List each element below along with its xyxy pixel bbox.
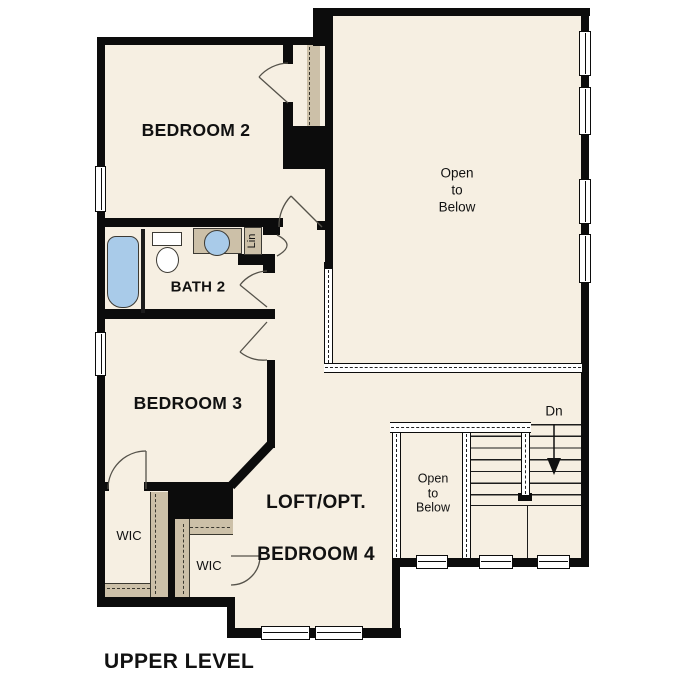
wall-linen-stub-top: [263, 224, 280, 235]
railing-open-below-vertical: [324, 269, 333, 364]
window-stair-1: [416, 555, 448, 569]
bedroom2-closet-dash: [309, 47, 310, 125]
wall-open-below-left: [325, 16, 333, 269]
wall-left-exterior: [97, 37, 105, 607]
window-right-1: [579, 31, 591, 76]
wall-loft-bottom: [227, 628, 401, 638]
railing-stair-divider: [521, 433, 530, 495]
window-right-2: [579, 87, 591, 135]
window-loft-2: [315, 626, 363, 640]
window-loft-1: [261, 626, 310, 640]
wall-wic-bottom: [97, 597, 235, 607]
wall-bedroom2-right-upper: [283, 37, 293, 64]
railing-stair-top: [390, 422, 531, 433]
label-stairs-dn: Dn: [545, 404, 562, 421]
label-loft-line1: LOFT/OPT.: [266, 492, 366, 513]
wall-bedroom2-right-lower: [283, 102, 293, 129]
wall-bedroom3-right: [267, 360, 275, 448]
wic2-shelf-left: [174, 518, 190, 598]
wall-hall-door-nub: [317, 221, 326, 230]
label-open-to-below-stair: Open to Below: [416, 471, 450, 515]
window-stair-3: [537, 555, 570, 569]
wall-bath-bottom: [97, 309, 275, 319]
label-bedroom3: BEDROOM 3: [134, 393, 243, 415]
label-loft-line2: BEDROOM 4: [257, 544, 375, 565]
wall-top-exterior: [313, 8, 590, 16]
label-loft: LOFT/OPT. BEDROOM 4: [257, 490, 375, 568]
window-bedroom2: [95, 166, 106, 212]
wic2-shelf-dash-v: [183, 524, 184, 594]
wall-wic-divider: [168, 518, 175, 598]
stair-landing-divider: [527, 506, 528, 558]
label-open-to-below-main: Open to Below: [439, 165, 476, 216]
wall-bath-jamb: [263, 256, 275, 273]
label-wic1: WIC: [116, 528, 141, 544]
toilet-tank-icon: [152, 232, 182, 246]
window-right-4: [579, 234, 591, 283]
wall-tub-divider: [141, 229, 145, 313]
wall-wic1-stub-left: [97, 482, 109, 491]
sink-icon: [204, 230, 230, 256]
wic1-shelf-dash-v: [155, 494, 156, 594]
plan-title: UPPER LEVEL: [104, 649, 254, 675]
railing-stair-middle: [462, 433, 471, 558]
railing-open-below-horizontal: [324, 363, 582, 373]
toilet-bowl-icon: [156, 247, 179, 273]
wic1-shelf-dash-h: [107, 588, 150, 589]
wic2-shelf-dash-h: [190, 527, 230, 528]
window-stair-2: [479, 555, 513, 569]
wall-wic1-stub-right: [144, 482, 169, 491]
label-bedroom2: BEDROOM 2: [142, 120, 251, 142]
bathtub-icon: [107, 236, 139, 308]
label-linen: Lin: [246, 234, 260, 249]
railing-cap-top: [324, 262, 333, 269]
wic1-shelf-bottom: [105, 583, 150, 598]
wall-block-wic: [168, 482, 233, 519]
stair-bottom-line: [471, 505, 581, 506]
wall-loft-right: [392, 558, 400, 638]
window-bedroom3: [95, 332, 106, 376]
window-right-3: [579, 179, 591, 224]
floor-plan: BEDROOM 2 BATH 2 BEDROOM 3 LOFT/OPT. BED…: [0, 0, 687, 687]
label-bath2: BATH 2: [171, 279, 226, 298]
wall-bedroom2-bottom: [97, 218, 283, 227]
railing-stair-left: [392, 433, 401, 558]
label-wic2: WIC: [196, 558, 221, 574]
wic1-shelf-right: [150, 492, 168, 598]
